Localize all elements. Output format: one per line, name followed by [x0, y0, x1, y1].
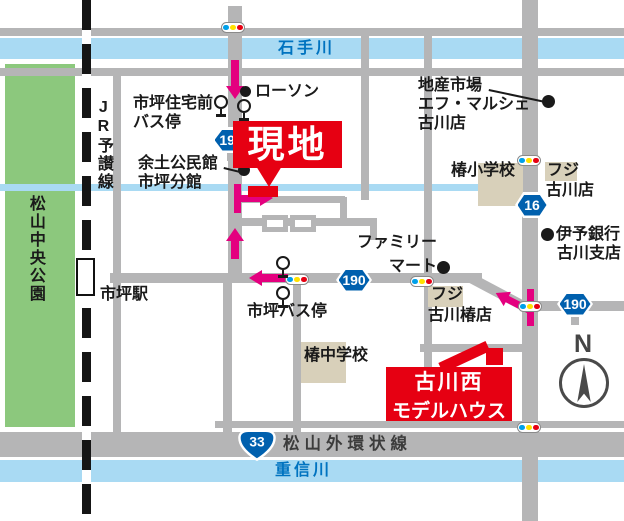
poi-iyo-bank-label-1: 伊予銀行	[556, 226, 620, 245]
poi-famima-label-2: マート	[389, 258, 437, 277]
poi-dot-chisan	[542, 95, 555, 108]
poi-chisan-label-1: 地産市場	[418, 77, 482, 96]
poi-fuji-tsubaki-label-1: フジ	[431, 286, 463, 305]
traffic-light-icon	[221, 22, 245, 33]
poi-iyo-bank-label-2: 古川支店	[557, 245, 621, 264]
route-190-badge: 190	[557, 291, 593, 317]
poi-jutakumae-label-2: バス停	[133, 114, 181, 133]
road-r16	[522, 0, 538, 521]
genchi-label: 現地	[233, 126, 342, 163]
poi-yodo-label-2: 市坪分館	[138, 174, 202, 193]
bus-stop-icon	[236, 99, 252, 122]
genchi-label-box: 現地	[233, 121, 342, 168]
route-arrow-south-shaft	[231, 60, 239, 87]
route-33-badge: 33	[238, 429, 276, 461]
site-mark	[248, 186, 278, 197]
traffic-light-icon	[517, 155, 541, 166]
poi-fuji-furukawa-label-2: 古川店	[546, 182, 594, 201]
river-ishite-label: 石手川	[278, 40, 335, 59]
poi-chisan-label-3: 古川店	[418, 115, 466, 134]
poi-lawson-label: ローソン	[255, 83, 319, 102]
access-map: 190 190 190 16 33 現地 古川西 モデルハウス N 石手川 重信…	[0, 0, 624, 521]
river-shigenobu-label: 重信川	[275, 462, 332, 481]
compass-n-label: N	[574, 330, 592, 360]
modelhouse-label-2: モデルハウス	[386, 396, 512, 423]
site-block-cell-2	[290, 215, 316, 232]
road-station-side	[113, 68, 121, 432]
modelhouse-label-box: 古川西 モデルハウス	[386, 367, 512, 421]
road-main-south	[223, 283, 232, 433]
traffic-light-icon	[518, 301, 542, 312]
park-label: 松山中央公園	[25, 195, 44, 303]
station-ichitsubo	[76, 258, 95, 296]
poi-fuji-furukawa-label-1: フジ	[547, 162, 579, 181]
poi-chisan-label-2: エフ・マルシェ	[418, 96, 530, 115]
bus-stop-icon	[213, 95, 229, 118]
traffic-light-icon	[517, 422, 541, 433]
poi-fuji-tsubaki-label-2: 古川椿店	[428, 307, 492, 326]
road-gaikanjo-label: 松山外環状線	[283, 435, 412, 454]
route-turn-site-bar	[234, 184, 241, 213]
modelhouse-label-1: 古川西	[386, 366, 512, 396]
poi-famima-label-1: ファミリー	[357, 234, 437, 253]
poi-jutakumae-label-1: 市坪住宅前	[133, 95, 213, 114]
poi-dot-lawson	[240, 86, 251, 97]
station-label: 市坪駅	[100, 286, 148, 305]
compass-icon	[559, 358, 609, 408]
poi-ichitsubo-bus-label: 市坪バス停	[247, 303, 327, 322]
poi-dot-iyo-bank	[541, 228, 554, 241]
route-arrow-north-shaft	[231, 240, 239, 259]
route-16-badge: 16	[515, 192, 549, 218]
railway-label: JR予讃線	[93, 99, 112, 191]
road-v-chisan	[361, 28, 369, 200]
genchi-pointer	[256, 166, 282, 187]
svg-text:33: 33	[249, 434, 265, 449]
poi-tsubaki-jhs-label: 椿中学校	[304, 347, 368, 366]
poi-yodo-label-1: 余土公民館	[138, 155, 218, 174]
site-block-cell-1	[262, 215, 288, 232]
bus-stop-icon	[275, 256, 291, 279]
route-190-badge: 190	[336, 267, 372, 293]
poi-dot-famima	[437, 261, 450, 274]
poi-tsubaki-es-label: 椿小学校	[451, 162, 515, 181]
